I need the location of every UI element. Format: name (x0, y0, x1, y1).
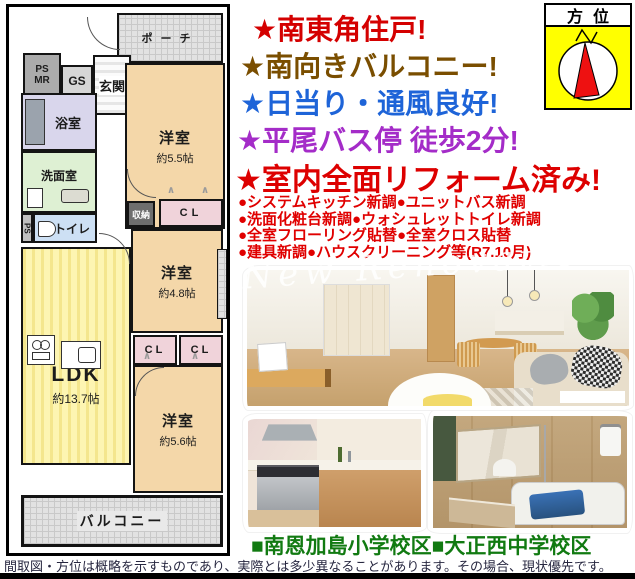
bedroom-1-size: 約5.5帖 (156, 150, 193, 166)
ldk-area: LDK 約13.7帖 (21, 247, 131, 465)
toilet-label: トイレ (54, 220, 90, 237)
storage-area: 収納 (127, 201, 155, 227)
headline-south-balcony: ★南向きバルコニー! (240, 45, 498, 85)
compass-icon (546, 27, 630, 106)
pipe-space-meter-box: PS MR (23, 53, 61, 97)
closet-door-mark: ∧ (201, 185, 209, 196)
balcony-label: バルコニー (77, 511, 168, 531)
bullet-line: ●システムキッチン新調●ユニットバス新調 (238, 195, 634, 212)
toilet-icon (38, 221, 56, 237)
headline-corner-unit: ★南東角住戸! (252, 8, 426, 48)
stove-cabinet (257, 477, 319, 509)
balcony-area: バルコニー (21, 495, 223, 547)
bedroom-3-name: 洋室 (162, 410, 194, 431)
stove-icon (27, 335, 55, 365)
pipe-space-side: PS (21, 213, 33, 243)
ldk-size: 約13.7帖 (52, 390, 99, 407)
ps-side-label: PS (23, 223, 32, 234)
bedroom-2-size: 約4.8帖 (158, 285, 195, 301)
dining-chair (457, 342, 480, 366)
porch-area: ポーチ (117, 13, 223, 63)
washroom-label: 洗面室 (41, 167, 77, 184)
closet-2: CL (133, 335, 177, 365)
range-hood (262, 424, 317, 440)
tv-board (247, 369, 331, 387)
closet-doors (323, 284, 390, 357)
pendant-light (534, 270, 535, 292)
compass-box: 方位 (544, 3, 632, 110)
mr-label: MR (34, 75, 50, 86)
sink-counter-icon (61, 341, 101, 369)
headline-sunlight: ★日当り・通風良好! (240, 82, 498, 122)
closet-1: CL (159, 199, 223, 227)
pendant-bulb (502, 296, 513, 307)
bottle (338, 447, 342, 462)
bullet-line: ●洗面化粧台新調●ウォシュレットトイレ新調 (238, 212, 634, 229)
kitchen-photo (243, 414, 426, 532)
ps-label: PS (35, 64, 48, 75)
headline-renovated: ★室内全面リフォーム済み! (235, 155, 601, 199)
kitchen-floor (248, 510, 319, 527)
pendant-light (507, 270, 508, 297)
washroom-area: 洗面室 (21, 151, 97, 213)
washer-icon (27, 188, 43, 208)
towel (600, 427, 621, 456)
bedroom-3-size: 約5.6帖 (159, 433, 196, 449)
bedroom-2-name: 洋室 (161, 262, 193, 283)
bathroom-area: 浴室 (21, 93, 97, 151)
renovation-bullet-list: ●システムキッチン新調●ユニットバス新調 ●洗面化粧台新調●ウォシュレットトイレ… (238, 195, 634, 261)
picture-frame (258, 342, 289, 372)
closet-door-mark: ∧ (143, 351, 151, 362)
bathtub-icon (25, 99, 45, 145)
bedroom-1-name: 洋室 (159, 127, 191, 148)
porch-label: ポーチ (142, 30, 199, 46)
wood-cabinets (319, 470, 421, 527)
bullet-line: ●建具新調●ハウスクリーニング等(R7.10月) (238, 245, 634, 262)
living-room-photo (243, 266, 633, 410)
floor-plan: ポーチ PS MR GS 玄関 浴室 洗面室 PS トイレ (6, 4, 230, 556)
faucet (348, 451, 351, 462)
bathroom-photo (428, 411, 632, 533)
side-window (217, 249, 227, 319)
vanity-icon (61, 189, 89, 203)
bottom-border (0, 573, 635, 579)
bathroom-label: 浴室 (55, 113, 81, 132)
closet-3: CL (179, 335, 223, 365)
toilet-area: トイレ (33, 213, 97, 243)
ldk-door-arc (99, 233, 130, 264)
wood-door (427, 275, 456, 361)
storage-label: 収納 (132, 208, 150, 221)
kitchen-counter (495, 311, 564, 335)
bath-window (433, 416, 456, 481)
closet-door-mark: ∧ (191, 351, 199, 362)
compass-title: 方位 (546, 5, 630, 27)
closet-1-label: CL (180, 207, 203, 219)
gs-label: GS (68, 74, 85, 88)
bullet-line: ●全室フローリング貼替●全室クロス貼替 (238, 228, 634, 245)
bedroom-2: 洋室 約4.8帖 (131, 229, 223, 333)
entrance-door-arc (87, 17, 120, 50)
plant (572, 292, 614, 346)
flyer-page: ポーチ PS MR GS 玄関 浴室 洗面室 PS トイレ (0, 0, 635, 579)
entrance-label: 玄関 (99, 76, 125, 95)
wash-bowl (493, 459, 516, 477)
closet-door-mark: ∧ (167, 185, 175, 196)
headline-bus-stop: ★平尾バス停 徒歩2分! (237, 119, 519, 159)
yellow-tray (423, 394, 473, 406)
white-patch (560, 391, 625, 403)
shower-bar (544, 425, 546, 483)
